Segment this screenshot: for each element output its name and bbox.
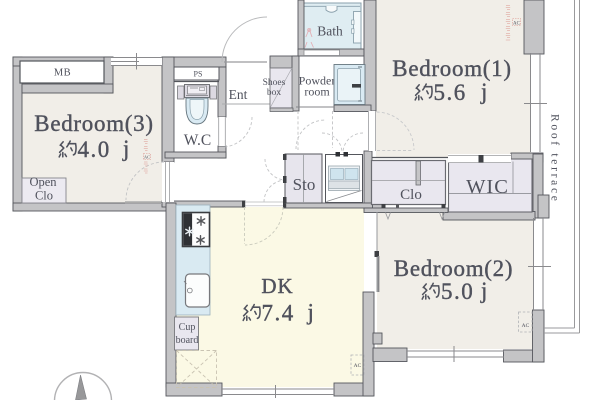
svg-text:board: board xyxy=(176,335,199,346)
svg-text:j: j xyxy=(307,300,316,325)
svg-text:Ent: Ent xyxy=(229,87,248,102)
svg-text:5.6: 5.6 xyxy=(434,80,467,105)
svg-text:W.C: W.C xyxy=(184,132,211,149)
svg-text:Clo: Clo xyxy=(35,189,53,203)
svg-text:PS: PS xyxy=(194,70,203,79)
svg-text:DK: DK xyxy=(261,274,293,298)
svg-text:Open: Open xyxy=(29,175,57,189)
svg-text:Cup: Cup xyxy=(179,322,196,333)
svg-text:Shoes: Shoes xyxy=(263,78,286,88)
svg-text:Bedroom(1): Bedroom(1) xyxy=(392,56,511,81)
svg-text:Roof terrace: Roof terrace xyxy=(549,114,561,204)
svg-text:Bedroom(2): Bedroom(2) xyxy=(394,256,513,281)
svg-text:MB: MB xyxy=(54,68,71,79)
svg-text:room: room xyxy=(304,85,330,99)
svg-text:Bedroom(3): Bedroom(3) xyxy=(34,111,153,136)
svg-text:j: j xyxy=(480,79,489,104)
svg-text:AC: AC xyxy=(513,22,521,27)
svg-text:AC: AC xyxy=(354,363,362,369)
svg-text:7.4: 7.4 xyxy=(262,301,295,326)
svg-text:5.0: 5.0 xyxy=(441,279,474,304)
svg-text:Bath: Bath xyxy=(317,24,343,39)
svg-text:4.0: 4.0 xyxy=(78,137,111,162)
svg-text:WIC: WIC xyxy=(466,176,509,198)
svg-text:j: j xyxy=(480,278,489,303)
svg-text:Clo: Clo xyxy=(400,187,422,203)
svg-text:AC: AC xyxy=(522,323,530,329)
svg-text:Sto: Sto xyxy=(293,175,316,194)
svg-text:j: j xyxy=(122,136,131,161)
svg-text:box: box xyxy=(267,88,282,98)
svg-text:AC: AC xyxy=(144,155,150,160)
